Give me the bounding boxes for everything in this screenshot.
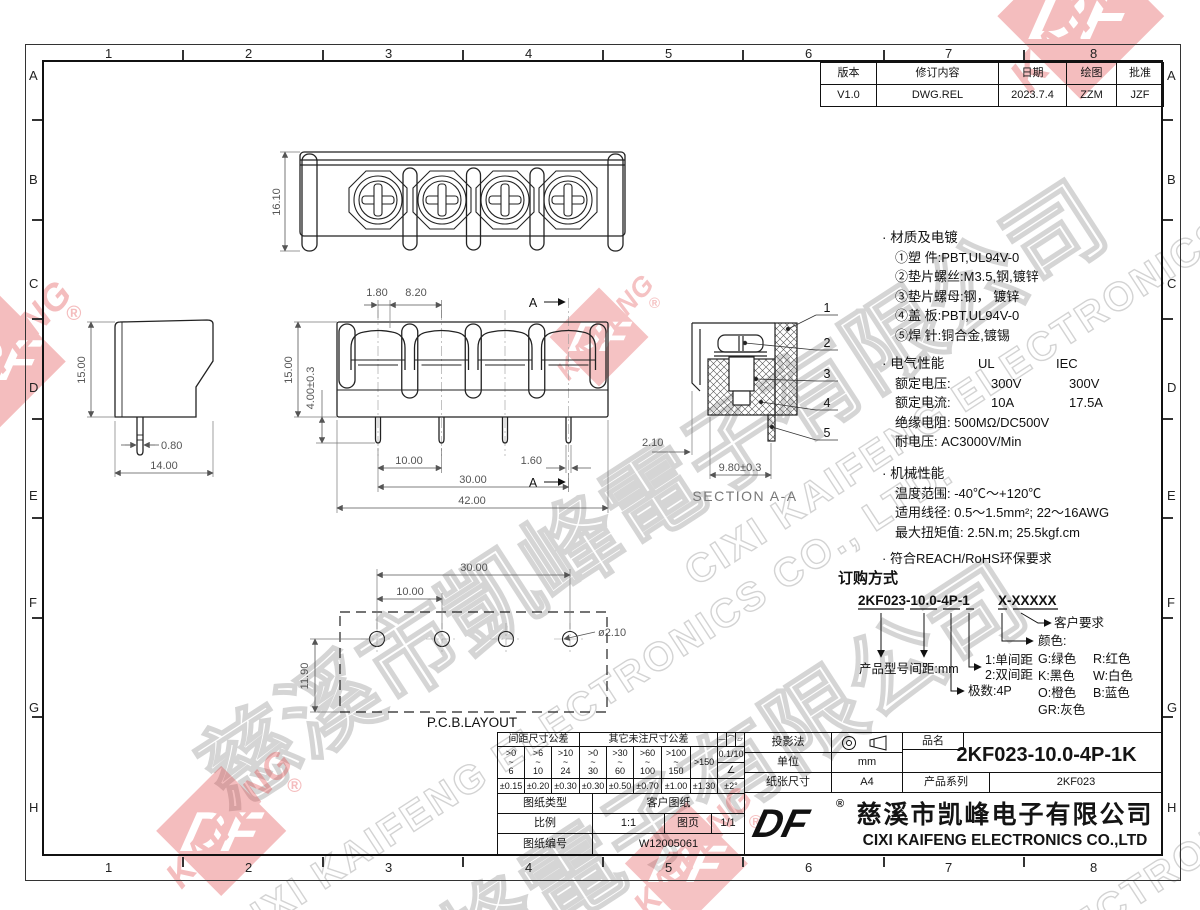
tol-range: >0 ~ 30	[579, 746, 607, 779]
grid-col-label: 7	[945, 46, 952, 61]
tol-range-over: >150	[690, 746, 718, 779]
grid-row-label: G	[1167, 700, 1177, 715]
unit-label: 单位	[744, 752, 832, 773]
grid-row-label: D	[1167, 380, 1176, 395]
unit-value: mm	[831, 752, 903, 773]
grid-col-label: 2	[245, 860, 252, 875]
projection-symbol-cell	[831, 732, 903, 753]
dim-side-height: 15.00	[76, 356, 88, 384]
angularity-symbol: ∠	[717, 762, 745, 779]
color-option: O:橙色	[1038, 685, 1077, 700]
product-series-label: 产品系列	[902, 772, 990, 793]
paper-value: A4	[831, 772, 903, 793]
grid-row-label: F	[29, 595, 37, 610]
dim-pcb-hole: ø2.10	[598, 627, 626, 639]
grid-col-label: 5	[665, 860, 672, 875]
grid-col-label: 3	[385, 46, 392, 61]
grid-col-label: 8	[1090, 860, 1097, 875]
color-option: G:绿色	[1038, 651, 1077, 666]
rev-version: V1.0	[820, 84, 877, 107]
tol-value: ±0.50	[606, 778, 634, 794]
company-name-cn: 慈溪市凯峰电子有限公司	[850, 796, 1160, 830]
color-option: W:白色	[1093, 668, 1134, 683]
sheet-type-value: 客户图纸	[592, 793, 745, 814]
section-label: SECTION A-A	[692, 488, 797, 504]
rev-header-approved: 批准	[1116, 62, 1164, 85]
dim-pcb-pitch: 10.00	[396, 586, 424, 598]
tol-pitch-header: 间距尺寸公差	[497, 732, 580, 747]
ordering-diagram: 订购方式 2KF023-10.0-4P-1 X-XXXXX 产品型号 间距:mm…	[836, 567, 1166, 725]
section-mark-bottom: A	[529, 476, 538, 490]
rev-date: 2023.7.4	[998, 84, 1067, 107]
note-material: · 材质及电镀 ①塑 件:PBT,UL94V-0 ②垫片螺丝:M3.5,钢,镀锌…	[882, 228, 1162, 345]
rev-header-content: 修订内容	[876, 62, 999, 85]
projection-label: 投影法	[744, 732, 832, 753]
tol-flatness: 0.1/10	[717, 746, 745, 763]
grid-row-label: C	[29, 276, 38, 291]
color-option: GR:灰色	[1038, 702, 1086, 717]
company-logo-df: DF	[748, 802, 813, 847]
dim-front-pin-length: 4.00±0.3	[305, 367, 317, 410]
tol-value: ±0.15	[497, 778, 525, 794]
dim-section-offset: 2.10	[642, 437, 663, 449]
dim-front-span: 30.00	[459, 474, 487, 486]
ordering-double-label: 2:双间距	[985, 668, 1033, 682]
dim-front-height: 15.00	[283, 356, 295, 384]
pcb-label: P.C.B.LAYOUT	[427, 715, 517, 730]
scale-value: 1:1	[592, 813, 665, 834]
tol-value: ±0.30	[579, 778, 607, 794]
grid-row-label: F	[1167, 595, 1175, 610]
tol-range: >0 ~ 6	[497, 746, 525, 779]
ordering-single-label: 1:单间距	[985, 653, 1033, 667]
dim-front-a: 1.80	[366, 287, 387, 299]
tol-value: ±1.30	[690, 778, 718, 794]
product-series-value: 2KF023	[989, 772, 1163, 793]
tol-other-header: 其它未注尺寸公差	[579, 732, 718, 747]
callout-5: 5	[824, 426, 831, 440]
company-name-en: CIXI KAIFENG ELECTRONICS CO.,LTD	[850, 830, 1160, 852]
color-option: R:红色	[1093, 651, 1131, 666]
view-front: A A 1.80 8.20 15.00 4.00±0.3 10.00 1.60 …	[278, 278, 650, 530]
grid-row-label: C	[1167, 276, 1176, 291]
dim-front-pin-width: 1.60	[521, 455, 542, 467]
grid-col-label: 4	[525, 46, 532, 61]
tol-range: >100 ~ 150	[661, 746, 691, 779]
ordering-title: 订购方式	[838, 569, 898, 587]
rev-approved: JZF	[1116, 84, 1164, 107]
grid-col-label: 2	[245, 46, 252, 61]
grid-col-label: 7	[945, 860, 952, 875]
note-compliance: · 符合REACH/RoHS环保要求	[882, 549, 1052, 569]
grid-row-label: H	[29, 800, 38, 815]
color-option: B:蓝色	[1093, 685, 1130, 700]
drawing-number-label: 图纸编号	[497, 833, 593, 856]
dim-front-width: 42.00	[458, 495, 486, 507]
bullet: ·	[882, 230, 887, 245]
tol-range: >30 ~ 60	[606, 746, 634, 779]
product-name-value: 2KF023-10.0-4P-1K	[930, 738, 1163, 773]
page-value: 1/1	[711, 813, 745, 834]
view-top-screw-face: 16.10	[272, 138, 642, 273]
grid-row-label: H	[1167, 800, 1176, 815]
grid-row-label: E	[29, 488, 38, 503]
rev-content: DWG.REL	[876, 84, 999, 107]
dim-front-pitch: 10.00	[395, 455, 423, 467]
grid-col-label: 5	[665, 46, 672, 61]
rev-header-version: 版本	[820, 62, 877, 85]
grid-row-label: D	[29, 380, 38, 395]
note-mechanical: · 机械性能 温度范围: -40℃～+120℃ 适用线径: 0.5～1.5mm²…	[882, 464, 1172, 542]
tol-value: ±0.70	[633, 778, 662, 794]
grid-row-label: B	[29, 172, 38, 187]
tol-angle: ±2°	[717, 778, 745, 794]
paper-label: 纸张尺寸	[744, 772, 832, 793]
engineering-drawing-page: 慈溪市凱峰電子有限公司 慈溪市凱峰電子有限公司 CIXI KAIFENG ELE…	[0, 0, 1200, 910]
grid-col-label: 6	[805, 860, 812, 875]
dim-pcb-depth: 11.90	[299, 663, 311, 690]
tol-range: >60 ~ 100	[633, 746, 662, 779]
dim-section-width: 9.80±0.3	[719, 462, 762, 474]
rev-header-date: 日期	[998, 62, 1067, 85]
view-section-aa: 1 2 3 4 5 2.10 9.80±0.3 SECTION A-A	[640, 283, 870, 523]
ordering-poles-label: 极数:4P	[968, 683, 1012, 698]
ordering-color-title: 颜色:	[1038, 633, 1066, 648]
page-label: 图页	[664, 813, 712, 834]
tol-value: ±0.30	[551, 778, 580, 794]
tol-value: ±1.00	[661, 778, 691, 794]
scale-label: 比例	[497, 813, 593, 834]
part-number-right: X-XXXXX	[998, 593, 1057, 608]
registered-mark: ®	[836, 798, 844, 810]
dim-top-height: 16.10	[271, 188, 283, 216]
callout-1: 1	[824, 301, 831, 315]
grid-col-label: 3	[385, 860, 392, 875]
note-electrical: · 电气性能ULIEC 额定电压:300V300V 额定电流:10A17.5A …	[882, 354, 1162, 452]
grid-col-label: 1	[105, 46, 112, 61]
first-angle-projection-icon	[838, 735, 896, 751]
dim-side-pin: 0.80	[161, 440, 182, 452]
callout-2: 2	[824, 336, 831, 350]
grid-row-label: A	[29, 68, 38, 83]
dim-side-width: 14.00	[150, 460, 178, 472]
section-mark-top: A	[529, 296, 538, 310]
grid-col-label: 8	[1090, 46, 1097, 61]
sheet-type-label: 图纸类型	[497, 793, 593, 814]
ordering-pitch-label: 间距:mm	[909, 662, 958, 676]
drawing-number-value: W12005061	[592, 833, 745, 856]
grid-row-label: B	[1167, 172, 1176, 187]
grid-col-label: 6	[805, 46, 812, 61]
grid-col-label: 4	[525, 860, 532, 875]
dim-pcb-span: 30.00	[460, 562, 488, 574]
ordering-customer-label: 客户要求	[1054, 615, 1105, 630]
grid-row-label: A	[1167, 68, 1176, 83]
ordering-model-label: 产品型号	[859, 662, 909, 676]
rev-header-drawn: 绘图	[1066, 62, 1117, 85]
rev-drawn: ZZM	[1066, 84, 1117, 107]
grid-row-label: G	[29, 700, 39, 715]
tol-value: ±0.20	[524, 778, 552, 794]
color-option: K:黑色	[1038, 668, 1075, 683]
view-side: 15.00 0.80 14.00	[65, 283, 295, 498]
view-pcb-layout: 30.00 10.00 11.90 ø2.10 P.C.B.LAYOUT	[290, 555, 662, 733]
tol-range: >6 ~ 10	[524, 746, 552, 779]
callout-4: 4	[824, 396, 831, 410]
part-number-left: 2KF023-10.0-4P-1	[858, 593, 970, 608]
dim-front-b: 8.20	[405, 287, 426, 299]
tol-range: >10 ~ 24	[551, 746, 580, 779]
callout-3: 3	[824, 367, 831, 381]
grid-col-label: 1	[105, 860, 112, 875]
